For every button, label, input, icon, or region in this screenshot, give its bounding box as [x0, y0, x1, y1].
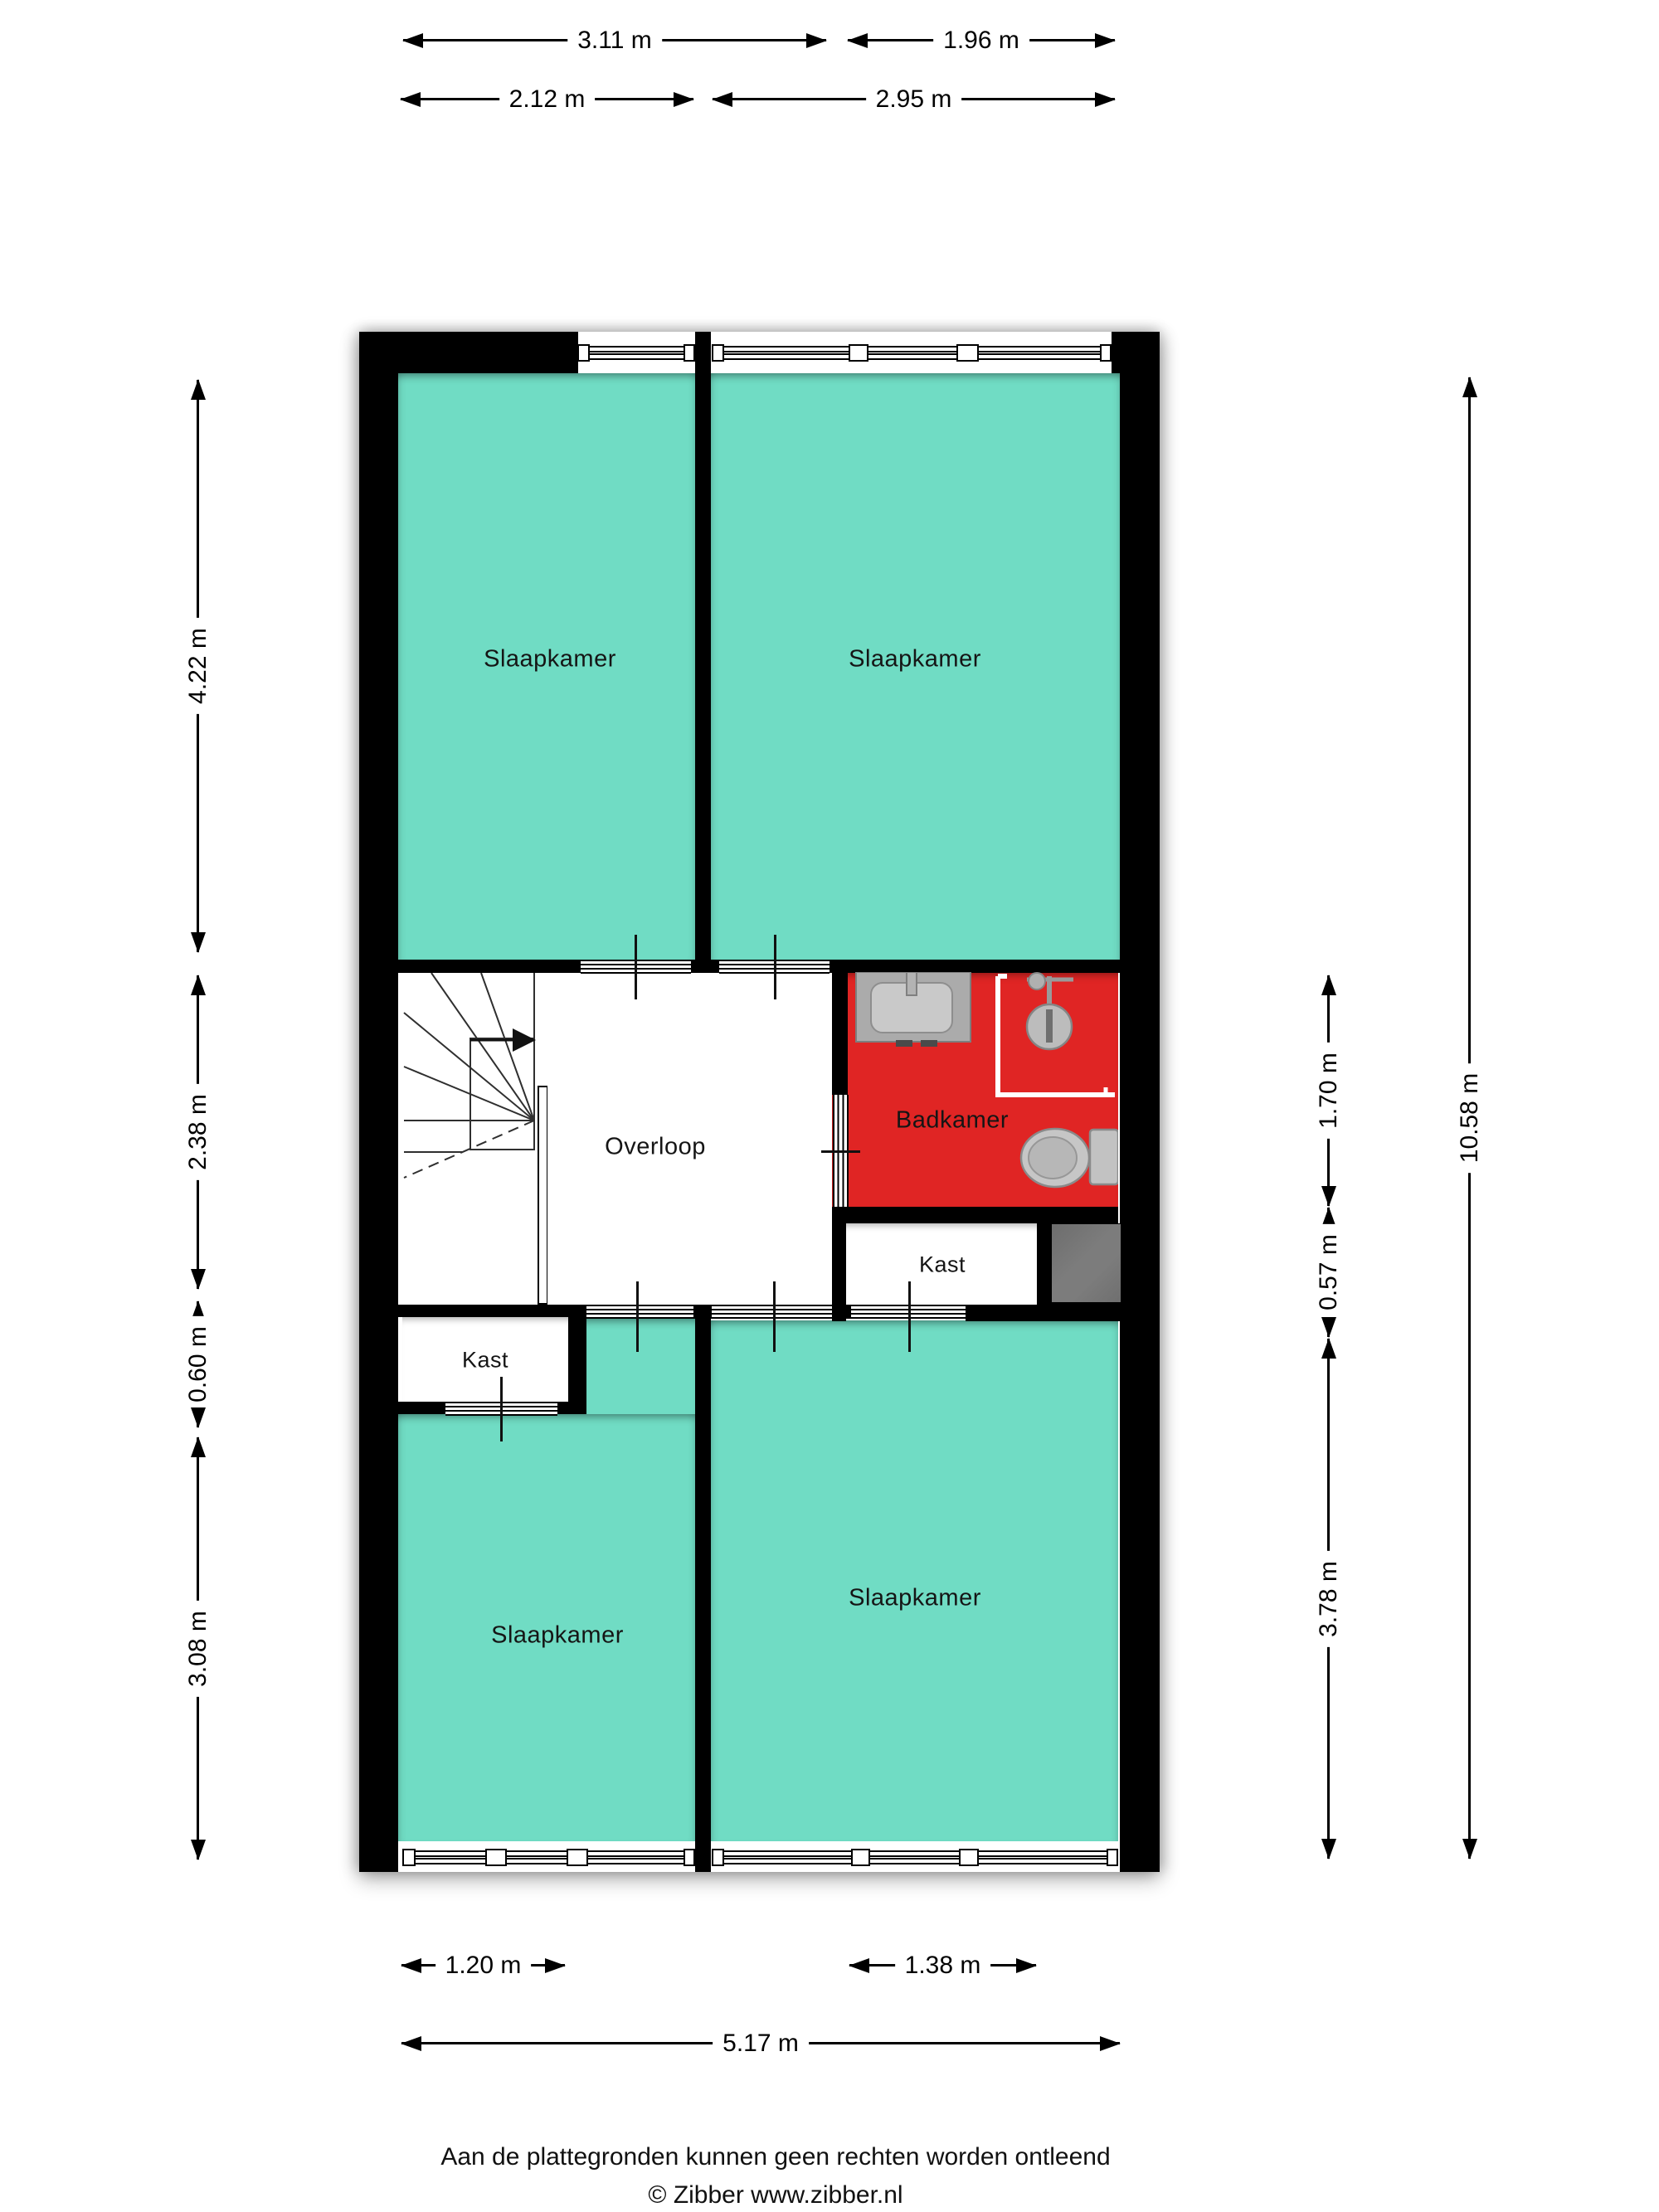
dimension-label: 1.38 m [895, 1952, 991, 1980]
wall [695, 332, 711, 973]
wall [691, 960, 719, 973]
dimension-top: 2.12 m [401, 98, 693, 100]
window [712, 346, 1112, 360]
wall [398, 960, 581, 973]
door-opening [712, 1305, 832, 1319]
window-mullion [712, 344, 724, 362]
door-tick [500, 1377, 503, 1441]
toilet-icon [1021, 1129, 1118, 1187]
dimension-right: 3.78 m [1327, 1339, 1330, 1859]
dimension-label: 1.96 m [933, 27, 1029, 55]
dimension-label: 3.11 m [567, 27, 662, 55]
dimension-label: 1.70 m [1315, 1043, 1343, 1139]
room-label-bedroom-bottom-left: Slaapkamer [491, 1622, 624, 1650]
wall [359, 332, 398, 1872]
window-mullion [684, 1849, 695, 1866]
window-mullion [959, 1849, 979, 1866]
wall [1112, 332, 1160, 373]
window-mullion [712, 1849, 724, 1866]
room-label-closet-right: Kast [919, 1252, 966, 1278]
wall [832, 1305, 851, 1319]
door-tick [636, 1281, 639, 1352]
window-mullion [849, 344, 868, 362]
staircase-icon [398, 973, 547, 1305]
window-mullion [577, 344, 590, 362]
door-tick [908, 1281, 911, 1352]
footer: Aan de plattegronden kunnen geen rechten… [112, 2138, 1439, 2212]
wall [359, 1305, 586, 1317]
door-tick [773, 1281, 776, 1352]
dimension-label: 4.22 m [184, 618, 212, 714]
window [402, 1850, 695, 1864]
dimension-left: 3.08 m [197, 1437, 199, 1860]
window-mullion [684, 344, 695, 362]
dimension-label: 0.60 m [184, 1316, 212, 1412]
room-label-bedroom-top-right: Slaapkamer [849, 646, 981, 673]
room-label-closet-left: Kast [462, 1348, 508, 1373]
dimension-label: 2.95 m [866, 85, 962, 114]
door-tick [635, 935, 637, 999]
dimension-label: 3.78 m [1315, 1551, 1343, 1647]
dimension-left: 2.38 m [197, 975, 199, 1289]
window-mullion [851, 1849, 870, 1866]
wall [557, 1402, 586, 1414]
dimension-bottom: 1.20 m [401, 1964, 565, 1966]
room-label-bathroom: Badkamer [896, 1107, 1009, 1135]
dimension-right-total: 10.58 m [1468, 377, 1471, 1859]
wall [695, 1319, 711, 1872]
dimension-label: 0.57 m [1315, 1224, 1343, 1320]
footer-credit: © Zibber www.zibber.nl [112, 2176, 1439, 2212]
door-tick [774, 935, 776, 999]
floorplan-page: Slaapkamer Slaapkamer Slaapkamer Slaapka… [0, 0, 1659, 2212]
window-mullion [402, 1849, 416, 1866]
dimension-label: 2.38 m [184, 1084, 212, 1180]
wall [1120, 332, 1160, 1872]
wall [832, 973, 848, 1095]
window [712, 1850, 1118, 1864]
dimension-bottom: 1.38 m [849, 1964, 1036, 1966]
dimension-top: 3.11 m [403, 39, 826, 41]
window-mullion [1100, 344, 1112, 362]
shower-icon [998, 973, 1115, 1095]
wall [359, 332, 578, 373]
dimension-left: 0.60 m [197, 1301, 199, 1427]
dimension-label: 3.08 m [184, 1601, 212, 1697]
dimension-right: 1.70 m [1327, 975, 1330, 1206]
dimension-label: 1.20 m [435, 1952, 532, 1980]
dimension-label: 2.12 m [499, 85, 596, 114]
dimension-label: 5.17 m [713, 2030, 809, 2058]
wall [359, 1402, 445, 1414]
dimension-top: 1.96 m [848, 39, 1115, 41]
wall [966, 1305, 1118, 1321]
window-mullion [956, 344, 979, 362]
wall [832, 1207, 1118, 1223]
room-label-bedroom-bottom-right: Slaapkamer [849, 1585, 981, 1612]
window-mullion [567, 1849, 588, 1866]
window-mullion [485, 1849, 507, 1866]
window-mullion [1107, 1849, 1118, 1866]
dimension-left: 4.22 m [197, 380, 199, 952]
room-label-landing: Overloop [605, 1134, 706, 1161]
wall [693, 1305, 712, 1319]
window [578, 346, 695, 360]
dimension-right: 0.57 m [1327, 1208, 1330, 1337]
dimension-top: 2.95 m [713, 98, 1115, 100]
room-label-bedroom-top-left: Slaapkamer [484, 646, 616, 673]
dimension-bottom: 5.17 m [401, 2042, 1120, 2044]
room-bedroom-bottom-right [711, 1320, 1118, 1841]
wall [829, 960, 1120, 973]
dimension-label: 10.58 m [1456, 1063, 1484, 1173]
sink-icon [856, 972, 971, 1047]
shaft [1052, 1224, 1121, 1302]
door-opening [586, 1305, 693, 1319]
footer-disclaimer: Aan de plattegronden kunnen geen rechten… [112, 2138, 1439, 2176]
bathroom-fixtures [848, 972, 1118, 1207]
wall [568, 1305, 586, 1414]
room-bedroom-bottom-left-upper [586, 1319, 695, 1418]
